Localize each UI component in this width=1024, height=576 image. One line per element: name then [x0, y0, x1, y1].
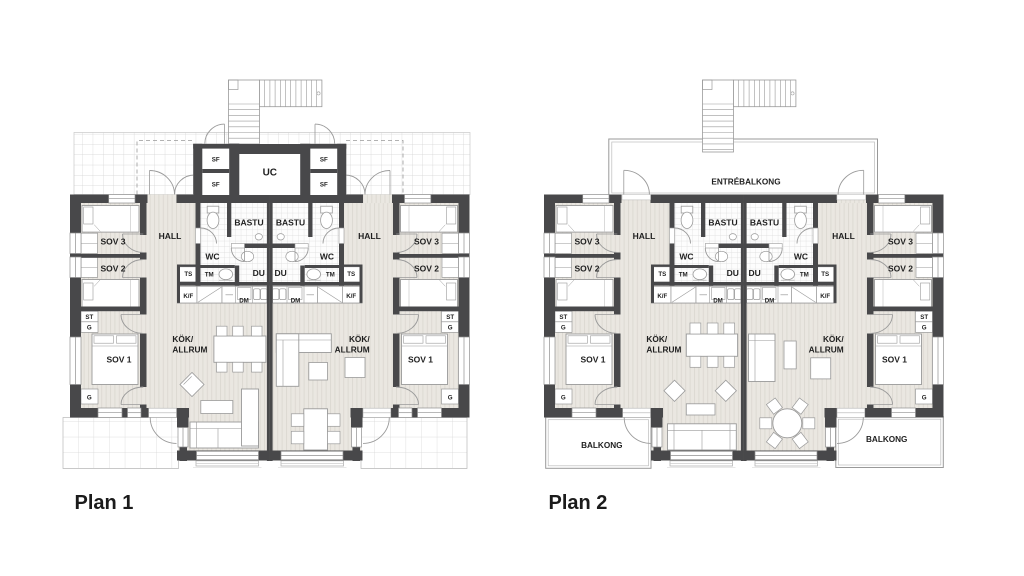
svg-text:SOV 1: SOV 1 — [106, 355, 131, 365]
svg-text:BASTU: BASTU — [750, 218, 779, 228]
svg-text:KÖK/: KÖK/ — [646, 334, 667, 344]
svg-text:ALLRUM: ALLRUM — [335, 344, 370, 354]
svg-text:DM: DM — [239, 297, 249, 304]
svg-text:TM: TM — [326, 272, 335, 279]
svg-text:TM: TM — [205, 272, 214, 279]
svg-text:SOV 1: SOV 1 — [408, 355, 433, 365]
svg-text:DU: DU — [749, 268, 761, 278]
svg-text:SOV 2: SOV 2 — [888, 264, 913, 274]
svg-text:Plan 2: Plan 2 — [549, 492, 608, 514]
svg-text:WC: WC — [679, 252, 693, 262]
svg-text:TS: TS — [658, 271, 666, 278]
svg-text:SOV 3: SOV 3 — [574, 237, 599, 247]
svg-text:DU: DU — [275, 268, 287, 278]
svg-text:KÖK/: KÖK/ — [823, 334, 844, 344]
svg-text:DM: DM — [291, 297, 301, 304]
svg-text:G: G — [87, 325, 92, 332]
svg-text:ST: ST — [85, 314, 93, 321]
svg-text:ALLRUM: ALLRUM — [809, 344, 844, 354]
svg-text:HALL: HALL — [159, 231, 182, 241]
svg-text:ALLRUM: ALLRUM — [646, 344, 681, 354]
svg-text:HALL: HALL — [358, 231, 381, 241]
svg-text:SF: SF — [212, 157, 220, 164]
svg-text:TM: TM — [800, 272, 809, 279]
svg-text:BALKONG: BALKONG — [866, 435, 907, 444]
svg-text:UC: UC — [263, 168, 277, 179]
svg-text:WC: WC — [320, 252, 334, 262]
svg-text:G: G — [561, 395, 566, 402]
svg-text:K/F: K/F — [820, 293, 830, 300]
svg-text:G: G — [448, 325, 453, 332]
svg-text:SOV 2: SOV 2 — [574, 264, 599, 274]
svg-text:BASTU: BASTU — [276, 218, 305, 228]
svg-text:SOV 1: SOV 1 — [882, 355, 907, 365]
svg-text:WC: WC — [205, 252, 219, 262]
svg-text:SOV 3: SOV 3 — [414, 237, 439, 247]
svg-text:BASTU: BASTU — [708, 218, 737, 228]
svg-text:TS: TS — [184, 271, 192, 278]
svg-text:ST: ST — [920, 314, 928, 321]
svg-text:SOV 2: SOV 2 — [414, 264, 439, 274]
svg-text:DM: DM — [765, 297, 775, 304]
svg-text:K/F: K/F — [657, 293, 667, 300]
svg-text:Plan 1: Plan 1 — [75, 492, 134, 514]
svg-text:DM: DM — [713, 297, 723, 304]
svg-text:G: G — [922, 325, 927, 332]
svg-text:HALL: HALL — [832, 231, 855, 241]
svg-text:HALL: HALL — [633, 231, 656, 241]
svg-text:ST: ST — [559, 314, 567, 321]
svg-text:ENTRÉBALKONG: ENTRÉBALKONG — [711, 177, 780, 187]
svg-text:SOV 3: SOV 3 — [100, 237, 125, 247]
svg-text:TS: TS — [821, 271, 829, 278]
svg-text:G: G — [87, 395, 92, 402]
svg-text:TM: TM — [679, 272, 688, 279]
svg-text:SF: SF — [320, 182, 328, 189]
svg-text:SOV 1: SOV 1 — [580, 355, 605, 365]
svg-text:KÖK/: KÖK/ — [349, 334, 370, 344]
svg-text:G: G — [448, 395, 453, 402]
svg-text:K/F: K/F — [183, 293, 193, 300]
svg-text:TS: TS — [347, 271, 355, 278]
svg-text:G: G — [922, 395, 927, 402]
svg-text:SOV 2: SOV 2 — [100, 264, 125, 274]
svg-text:G: G — [561, 325, 566, 332]
svg-text:WC: WC — [794, 252, 808, 262]
svg-text:SF: SF — [212, 182, 220, 189]
svg-text:KÖK/: KÖK/ — [172, 334, 193, 344]
svg-text:SF: SF — [320, 157, 328, 164]
svg-text:SOV 3: SOV 3 — [888, 237, 913, 247]
svg-text:BASTU: BASTU — [234, 218, 263, 228]
svg-text:DU: DU — [727, 268, 739, 278]
svg-text:ALLRUM: ALLRUM — [172, 344, 207, 354]
svg-text:BALKONG: BALKONG — [581, 441, 622, 450]
svg-text:K/F: K/F — [346, 293, 356, 300]
svg-text:ST: ST — [446, 314, 454, 321]
svg-text:DU: DU — [253, 268, 265, 278]
